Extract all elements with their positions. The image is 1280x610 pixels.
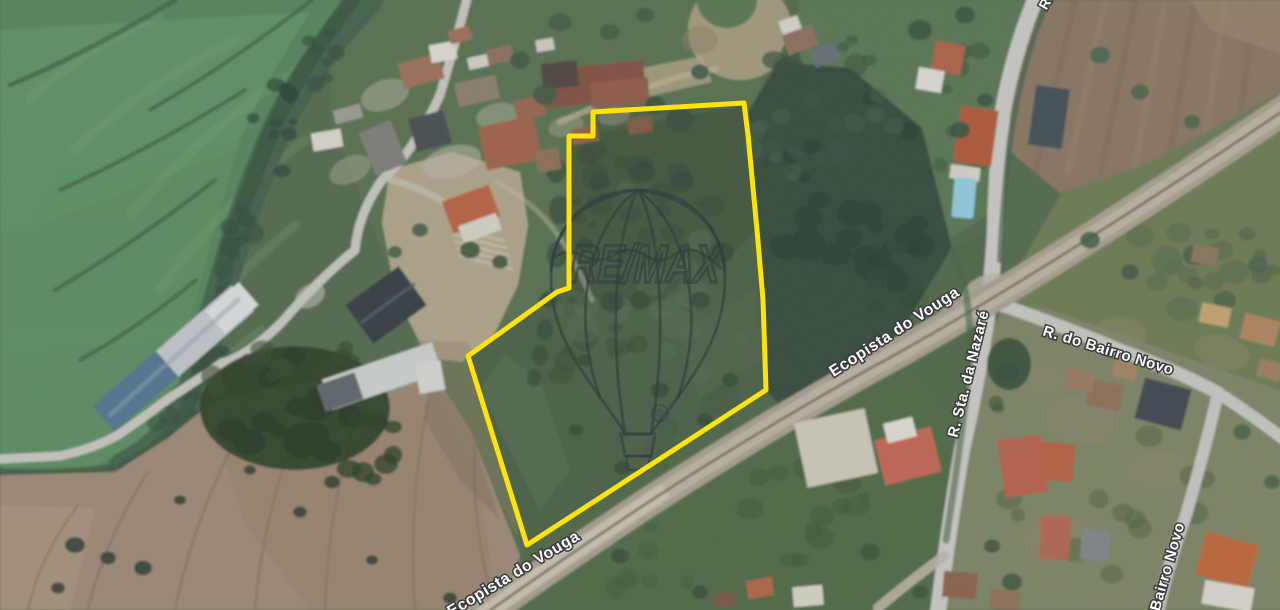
svg-text:®: ®: [656, 407, 665, 421]
svg-text:RE/MAX: RE/MAX: [564, 235, 727, 294]
